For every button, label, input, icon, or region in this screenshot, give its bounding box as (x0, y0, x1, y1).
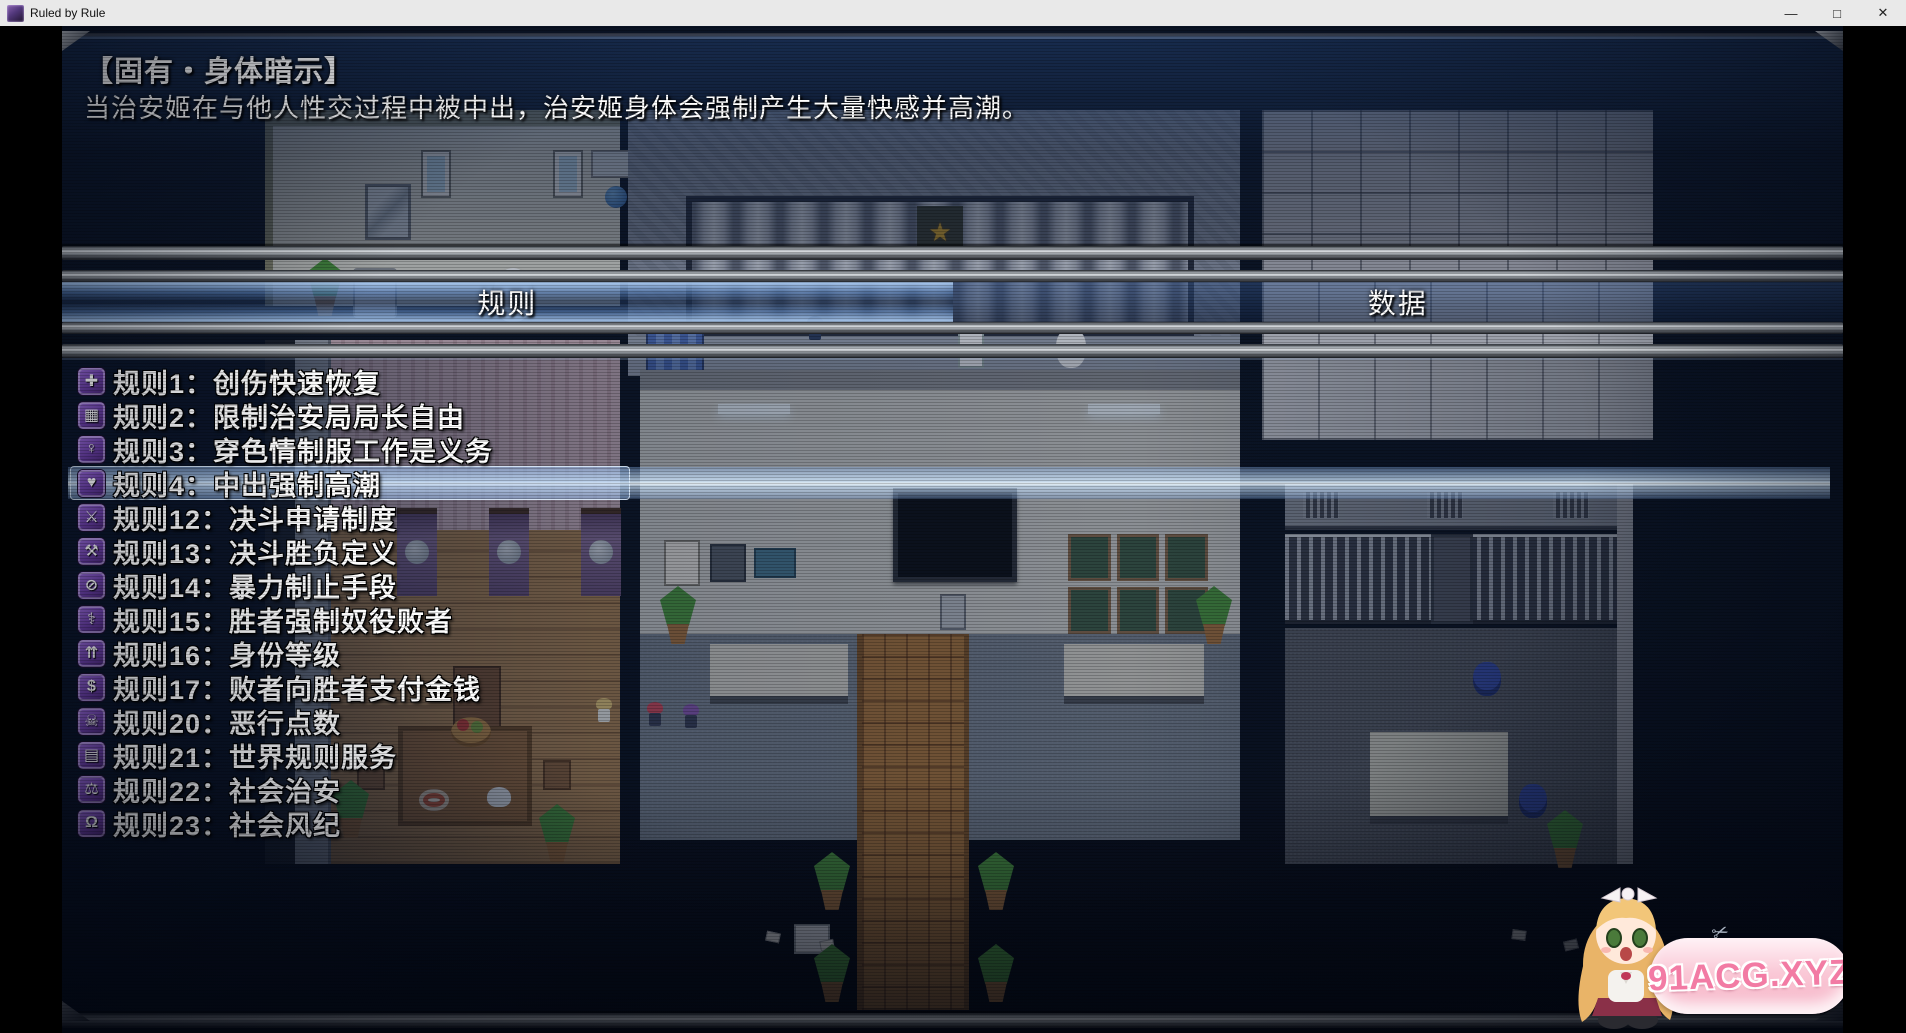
metal-rail (62, 246, 1843, 260)
villainy-icon: ☠ (78, 708, 105, 735)
rule-item[interactable]: ⚔规则12：决斗申请制度 (78, 500, 493, 534)
rule-item[interactable]: ⇈规则16：身份等级 (78, 636, 493, 670)
tab-数据[interactable]: 数据 (953, 282, 1844, 322)
uniform-girl-icon: ♀ (78, 436, 105, 463)
rule-item[interactable]: ☠规则20：恶行点数 (78, 704, 493, 738)
rule-item[interactable]: ⊘规则14：暴力制止手段 (78, 568, 493, 602)
climax-icon: ♥ (78, 470, 105, 497)
rule-item[interactable]: ✚规则1：创伤快速恢复 (78, 364, 493, 398)
watermark-text: 91ACG.XYZ (1648, 952, 1843, 999)
metal-rail (62, 270, 1843, 282)
padlock-icon: Ω (78, 810, 105, 837)
minimize-button[interactable]: — (1768, 0, 1814, 26)
rule-headline: 【固有・身体暗示】 (84, 48, 354, 90)
rule-item[interactable]: ▦规则2：限制治安局局长自由 (78, 398, 493, 432)
money-bag-icon: $ (78, 674, 105, 701)
game-viewport: ★ (62, 26, 1843, 1033)
app-icon (7, 5, 24, 22)
medical-cross-icon: ✚ (78, 368, 105, 395)
rules-list: ✚规则1：创伤快速恢复▦规则2：限制治安局局长自由♀规则3：穿色情制服工作是义务… (78, 364, 493, 840)
verdict-hammer-icon: ⚒ (78, 538, 105, 565)
prohibition-icon: ⊘ (78, 572, 105, 599)
watermark-pill: 91ACG.XYZ (1650, 938, 1843, 1014)
watermark: ✂ 91ACG.XYZ (1562, 872, 1843, 1032)
window-title: Ruled by Rule (30, 6, 105, 20)
jail-bars-icon: ▦ (78, 402, 105, 429)
window-titlebar[interactable]: Ruled by Rule — □ ✕ (0, 0, 1906, 26)
rule-item[interactable]: $规则17：败者向胜者支付金钱 (78, 670, 493, 704)
rule-item[interactable]: ⚕规则15：胜者强制奴役败者 (78, 602, 493, 636)
tab-规则[interactable]: 规则 (62, 282, 953, 322)
tab-bar: 规则数据 (62, 282, 1843, 322)
rule-label: 规则23：社会风纪 (113, 804, 341, 843)
metal-rail (62, 322, 1843, 334)
rule-item[interactable]: Ω规则23：社会风纪 (78, 806, 493, 840)
rule-description: 当治安姬在与他人性交过程中被中出，治安姬身体会强制产生大量快感并高潮。 (84, 88, 1029, 125)
crossed-swords-icon: ⚔ (78, 504, 105, 531)
app-window: Ruled by Rule — □ ✕ (0, 0, 1906, 1033)
scales-icon: ⚖ (78, 776, 105, 803)
tab-label: 规则 (477, 282, 537, 322)
rule-item[interactable]: ⚖规则22：社会治安 (78, 772, 493, 806)
caduceus-icon: ⚕ (78, 606, 105, 633)
close-button[interactable]: ✕ (1860, 0, 1906, 26)
game-area: ★ (0, 26, 1906, 1033)
rule-item[interactable]: ▤规则21：世界规则服务 (78, 738, 493, 772)
tab-label: 数据 (1368, 282, 1428, 322)
rule-description-panel: 【固有・身体暗示】 当治安姬在与他人性交过程中被中出，治安姬身体会强制产生大量快… (62, 33, 1843, 246)
rule-item[interactable]: ♀规则3：穿色情制服工作是义务 (78, 432, 493, 466)
maximize-button[interactable]: □ (1814, 0, 1860, 26)
rank-chevrons-icon: ⇈ (78, 640, 105, 667)
rule-item[interactable]: ⚒规则13：决斗胜负定义 (78, 534, 493, 568)
metal-rail (62, 344, 1843, 358)
window-controls: — □ ✕ (1768, 0, 1906, 26)
rule-item[interactable]: ♥规则4：中出强制高潮 (78, 466, 493, 500)
rulebook-icon: ▤ (78, 742, 105, 769)
